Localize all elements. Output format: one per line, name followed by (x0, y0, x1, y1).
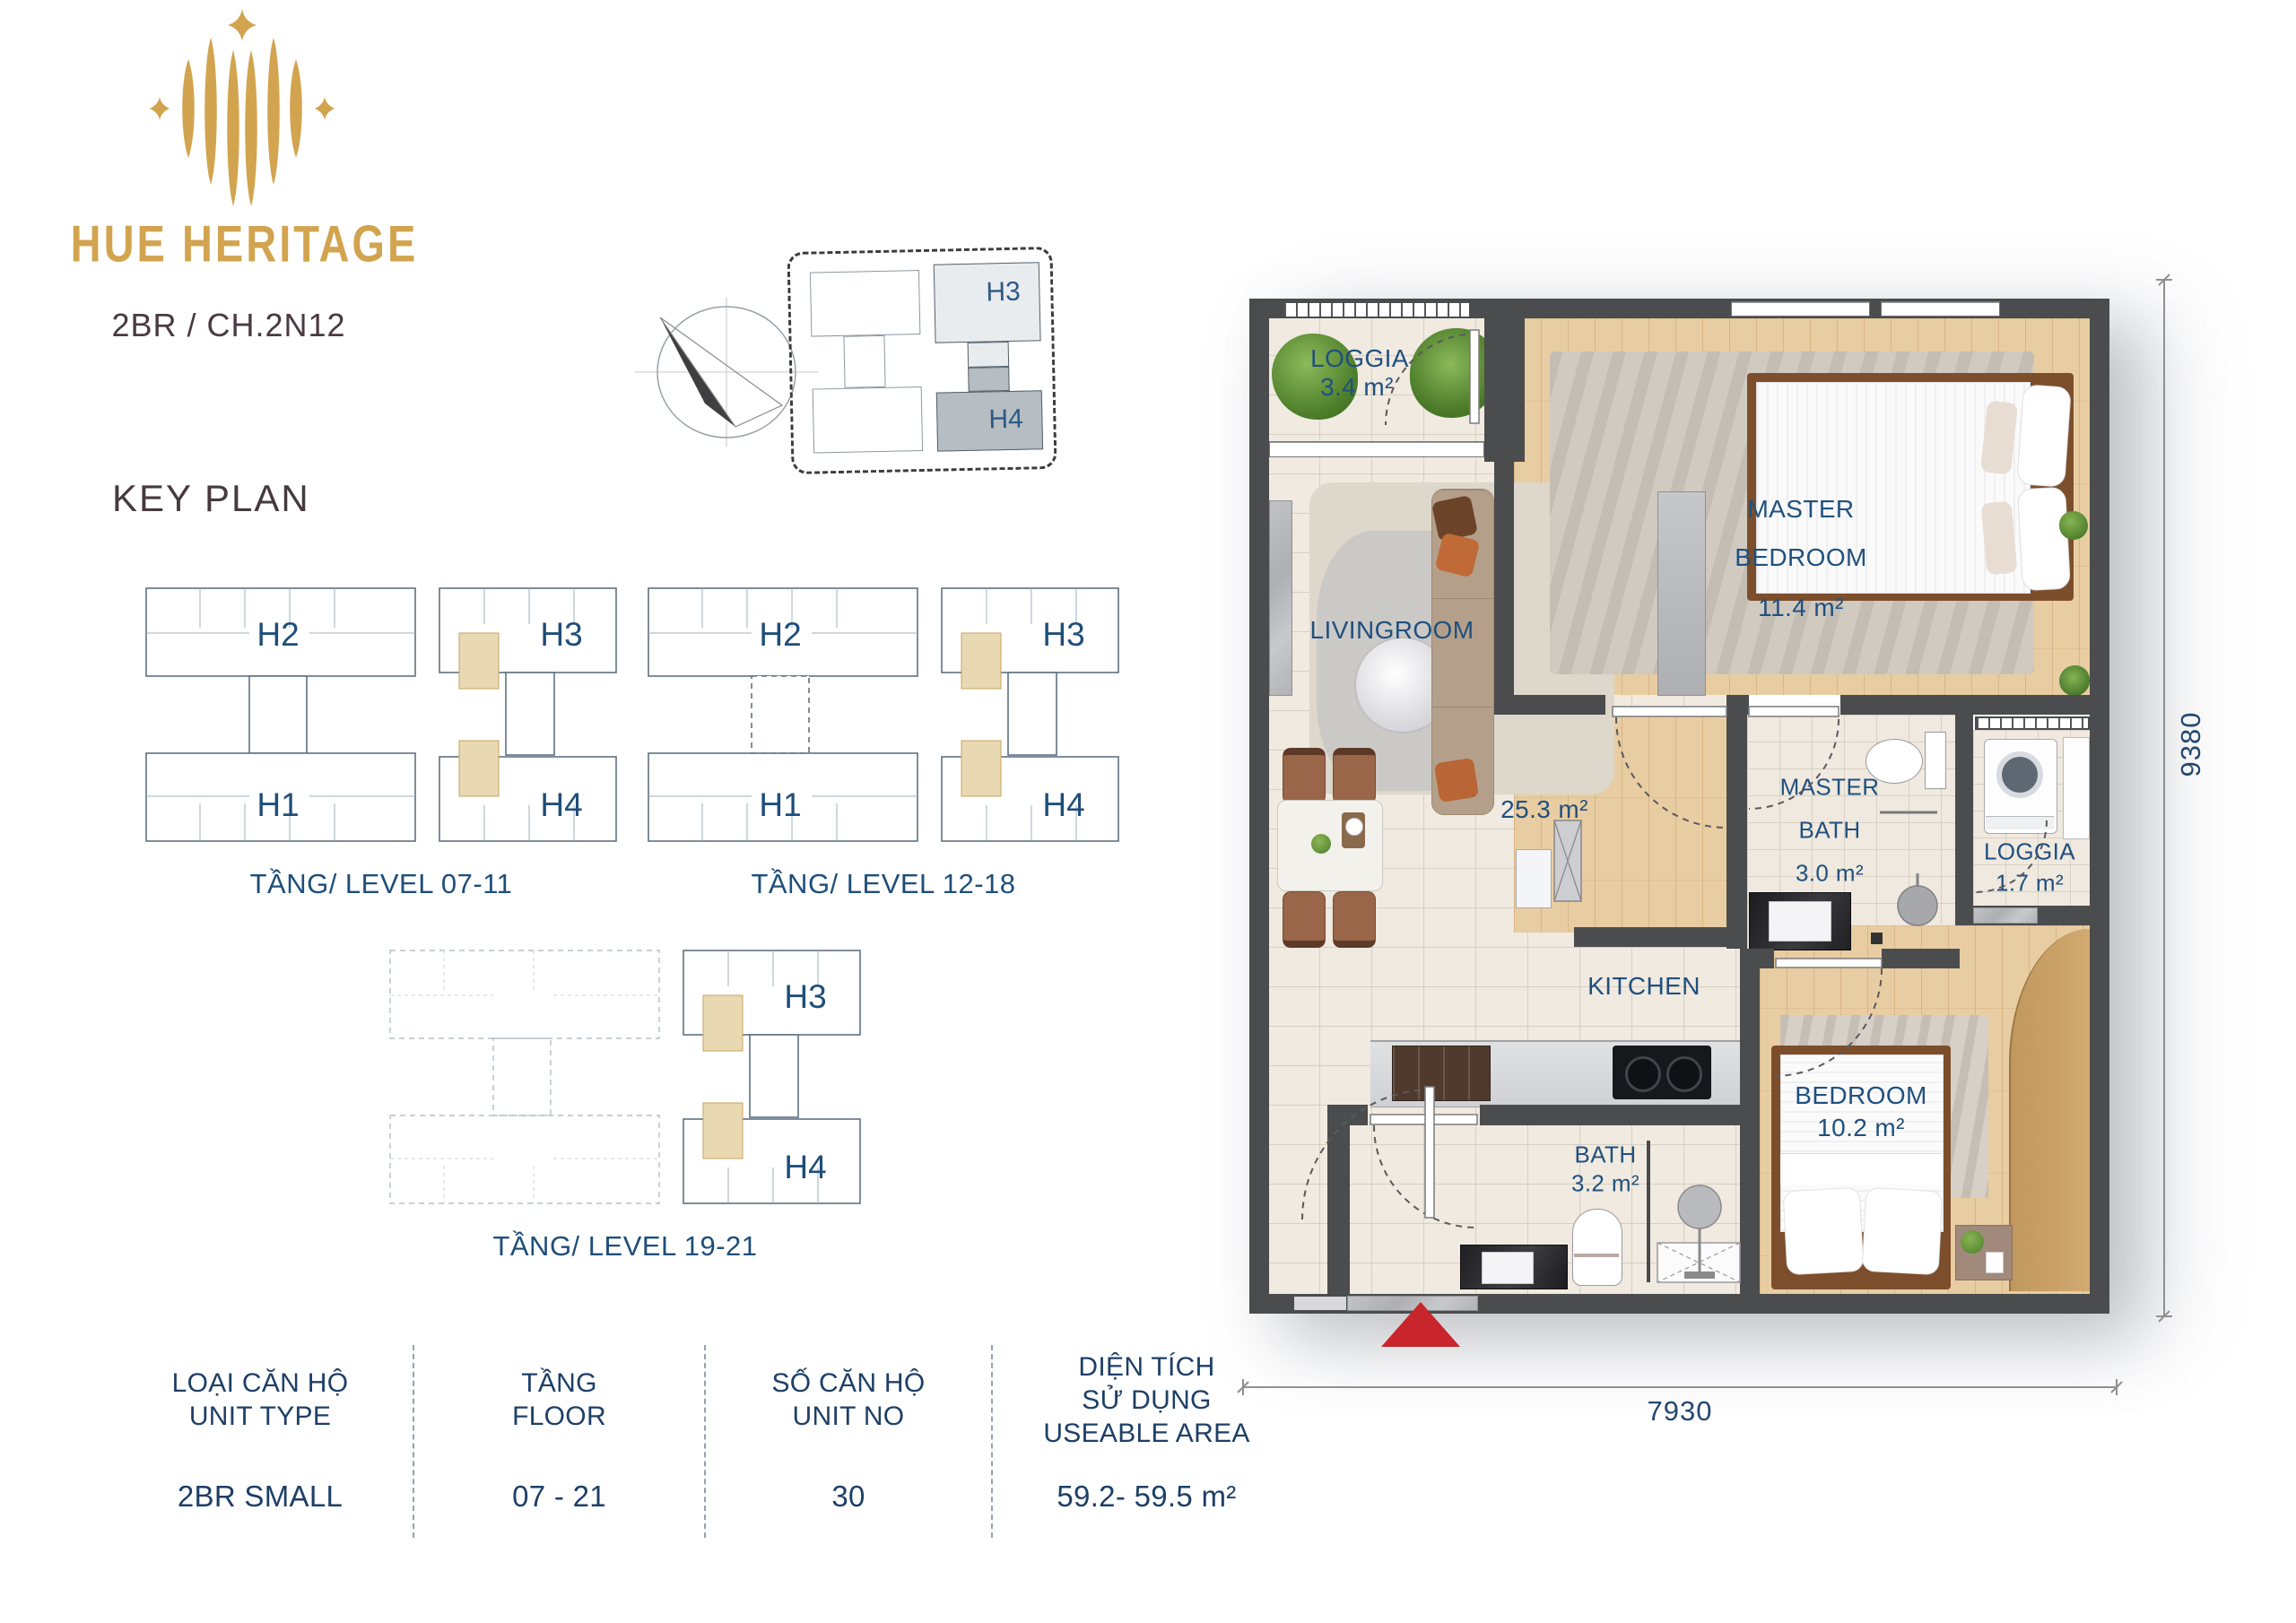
master-bath-area: 3.0 m² (1796, 860, 1864, 888)
bedroom-plant (2059, 511, 2088, 540)
dining-chair (1333, 891, 1376, 948)
master-bedroom-label-1: MASTER (1747, 495, 1854, 524)
wall-left (1249, 299, 1269, 1314)
toilet-seat-line (1574, 1254, 1619, 1257)
unit-no-value: 30 (831, 1480, 865, 1514)
sofa-pillow (1434, 758, 1479, 803)
table-col-floor: TẦNG FLOOR 07 - 21 (413, 1345, 704, 1538)
kp1-h1-label: H1 (257, 786, 299, 823)
key-plan-level-19-21: H3 H4 (387, 943, 863, 1212)
wall-bedroom-left (1740, 968, 1760, 1294)
col-header: LOẠI CĂN HỘ UNIT TYPE (172, 1345, 349, 1454)
key-plan-level-12-18: H2 H1 H3 H4 (646, 581, 1121, 850)
dining-chair (1283, 891, 1326, 948)
kp1-h2-label: H2 (257, 616, 299, 653)
table-col-unit-type: LOẠI CĂN HỘ UNIT TYPE 2BR SMALL (108, 1345, 413, 1538)
site-h4-label: H4 (988, 404, 1023, 436)
kp1-right-tower (439, 588, 616, 841)
site-tower-core-upper (968, 342, 1010, 368)
loggia-railing (1283, 301, 1471, 318)
col-header: DIỆN TÍCH SỬ DỤNG USEABLE AREA (1043, 1345, 1249, 1454)
key-plan-heading: KEY PLAN (112, 477, 310, 520)
unit-info-table: LOẠI CĂN HỘ UNIT TYPE 2BR SMALL TẦNG FLO… (108, 1345, 1300, 1538)
wall-bedroom-top (1882, 949, 1960, 968)
highlighted-unit (459, 633, 499, 689)
kp2-h4-label: H4 (1042, 786, 1084, 823)
highlighted-unit (703, 1103, 743, 1159)
kp3-h3-label: H3 (784, 978, 826, 1015)
dining-chair (1333, 748, 1376, 804)
key-plan-level-07-11: H2 H1 H3 H4 (143, 581, 619, 850)
site-tower-other-bottom (813, 386, 923, 454)
bath-area: 3.2 m² (1571, 1170, 1639, 1198)
wall-loggia-masterbed (1484, 316, 1525, 462)
bed-pillow (2016, 384, 2072, 487)
low-wall-segment (1294, 1297, 1346, 1310)
wall-masterbed-bottom (1840, 695, 2090, 715)
loggia-sliding-window (1269, 441, 1484, 457)
highlighted-unit (961, 741, 1001, 796)
kp1-h4-label: H4 (540, 786, 582, 823)
bedroom-area: 10.2 m² (1817, 1114, 1905, 1142)
kp2-h3-label: H3 (1042, 616, 1084, 653)
wall-masterbed-bottom (1726, 695, 1749, 715)
bath-basin (1482, 1252, 1534, 1284)
unit-code: 2BR / CH.2N12 (85, 307, 372, 344)
tv-cabinet (1269, 500, 1292, 696)
side-loggia-railing (1975, 716, 2090, 730)
kp2-h1-label: H1 (759, 786, 801, 823)
highlighted-unit (703, 995, 743, 1051)
laundry-cabinet (2063, 737, 2090, 839)
kp1-h3-label: H3 (540, 616, 582, 653)
site-location-plan: H3 H4 (787, 247, 1057, 474)
toilet-tank (1925, 732, 1946, 789)
wall-bath-top (1327, 1105, 1368, 1125)
livingroom-label: LIVINGROOM (1310, 616, 1474, 645)
unit-type-value: 2BR SMALL (178, 1480, 343, 1514)
side-loggia-area: 1.7 m² (1996, 870, 2064, 898)
table-col-unit-no: SỐ CĂN HỘ UNIT NO 30 (704, 1345, 991, 1538)
kp3-left-tower-ghost (390, 950, 659, 1203)
site-tower-other-top (810, 270, 920, 337)
site-h3-label: H3 (986, 277, 1021, 308)
vanity-basin (1769, 901, 1831, 942)
fridge (1516, 849, 1552, 908)
col-header: SỐ CĂN HỘ UNIT NO (771, 1345, 925, 1454)
wall-masterbath-loggia (1955, 715, 1973, 925)
toilet (1572, 1209, 1622, 1286)
master-bath-label-1: MASTER (1780, 774, 1880, 802)
project-name: HUE HERITAGE (63, 213, 426, 273)
nightstand-plant (1961, 1230, 1984, 1254)
livingroom-area: 25.3 m² (1500, 795, 1588, 824)
dimension-width: 7930 (1648, 1395, 1713, 1428)
bed-pillow (1862, 1187, 1944, 1275)
wall-bath-top (1480, 1105, 1740, 1125)
brochure-page: HUE HERITAGE 2BR / CH.2N12 H3 H4 KEY PLA… (0, 0, 2296, 1623)
wall-masterbath-left (1726, 715, 1747, 949)
entrance-marker-icon (1381, 1302, 1460, 1347)
washing-machine-panel (1986, 816, 2054, 829)
kp1-level-label: TẦNG/ LEVEL 07-11 (143, 868, 619, 900)
dimension-height: 9380 (2175, 712, 2207, 777)
loggia-top-area: 3.4 m² (1320, 373, 1394, 402)
bedroom-label: BEDROOM (1795, 1081, 1926, 1110)
floor-value: 07 - 21 (512, 1480, 606, 1514)
master-bedroom-window (1881, 301, 2000, 317)
floor-drain (1871, 933, 1883, 944)
hue-heritage-logo-monogram (135, 7, 350, 213)
master-bath-label-2: BATH (1798, 817, 1860, 845)
kp3-h4-label: H4 (784, 1149, 826, 1185)
master-bedroom-label-2: BEDROOM (1735, 543, 1866, 572)
highlighted-unit (459, 741, 499, 796)
kitchen-cabinet (1392, 1046, 1491, 1101)
master-bedroom-window (1731, 301, 1870, 317)
washing-machine-drum (1996, 751, 2043, 798)
side-loggia-label: LOGGIA (1984, 838, 2075, 866)
wall-living-masterbed (1494, 462, 1514, 715)
site-tower-core-lower (968, 367, 1010, 392)
col-header: TẦNG FLOOR (512, 1345, 606, 1454)
wall-masterbed-bottom (1494, 695, 1605, 715)
bath-label: BATH (1574, 1141, 1636, 1169)
table-plant (1311, 834, 1331, 854)
kitchen-label: KITCHEN (1587, 972, 1700, 1001)
cooktop-burner (1666, 1056, 1702, 1092)
bed-pillow (2017, 487, 2071, 592)
kp2-right-tower (942, 588, 1118, 841)
bed-pillow (1783, 1187, 1865, 1275)
site-tower-other-core (843, 335, 885, 388)
kp2-h2-label: H2 (759, 616, 801, 653)
highlighted-unit (961, 633, 1001, 689)
kp3-level-label: TẦNG/ LEVEL 19-21 (387, 1230, 863, 1263)
wall-bath-left (1327, 1125, 1350, 1294)
plate (1345, 818, 1363, 836)
wall-bedroom-top (1740, 949, 1774, 968)
dining-chair (1283, 748, 1326, 804)
accent-pillow (1981, 501, 2018, 576)
bed-sheet-fold (1780, 1153, 1942, 1185)
table-col-useable-area: DIỆN TÍCH SỬ DỤNG USEABLE AREA 59.2- 59.… (991, 1345, 1300, 1538)
wall-hall-kitchen (1574, 927, 1740, 947)
bedroom-plant (2059, 665, 2090, 696)
loggia-threshold (1973, 907, 2038, 924)
kp3-right-tower (683, 950, 860, 1203)
master-wardrobe (1657, 491, 1706, 696)
cooktop-burner (1625, 1056, 1661, 1092)
master-bedroom-area: 11.4 m² (1758, 594, 1844, 622)
nightstand-item (1986, 1252, 2004, 1273)
floor-drain (1702, 1254, 1715, 1266)
kp2-level-label: TẦNG/ LEVEL 12-18 (646, 868, 1121, 900)
loggia-top-label: LOGGIA (1310, 344, 1409, 373)
wall-right (2090, 299, 2109, 1314)
useable-area-value: 59.2- 59.5 m² (1057, 1480, 1236, 1514)
